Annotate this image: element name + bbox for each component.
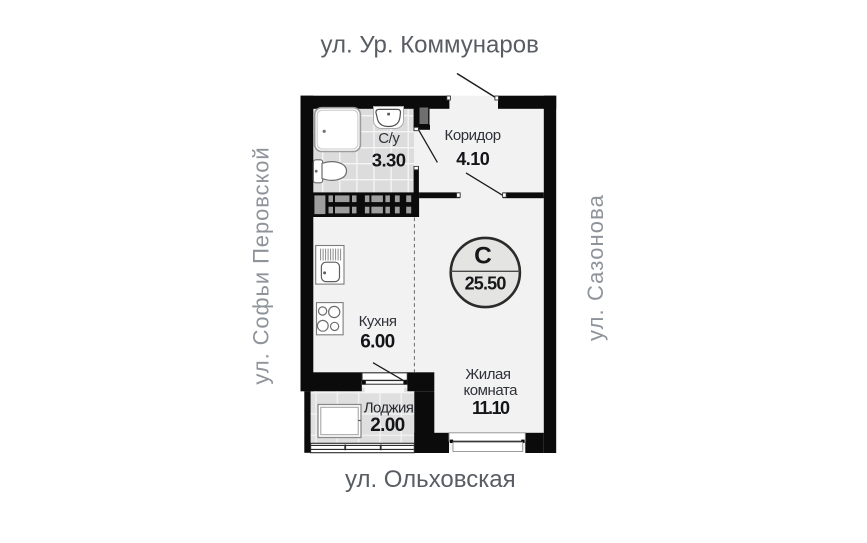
svg-text:2.00: 2.00 (370, 415, 404, 436)
svg-text:ул. Ур. Коммунаров: ул. Ур. Коммунаров (321, 32, 539, 59)
svg-text:комната: комната (464, 382, 519, 399)
svg-text:С/у: С/у (378, 130, 400, 147)
svg-text:ул. Софьи Перовской: ул. Софьи Перовской (248, 146, 273, 384)
svg-text:Коридор: Коридор (445, 127, 501, 144)
svg-text:Кухня: Кухня (359, 313, 397, 330)
svg-text:ул. Сазонова: ул. Сазонова (583, 194, 608, 341)
svg-text:ул. Ольховская: ул. Ольховская (345, 466, 516, 493)
svg-text:11.10: 11.10 (472, 398, 510, 418)
svg-text:Лоджия: Лоджия (364, 399, 414, 416)
svg-text:4.10: 4.10 (456, 149, 490, 169)
svg-text:С: С (474, 242, 492, 269)
svg-text:25.50: 25.50 (465, 274, 507, 294)
svg-text:Жилая: Жилая (465, 366, 511, 383)
svg-text:6.00: 6.00 (360, 332, 394, 353)
svg-text:3.30: 3.30 (372, 149, 406, 170)
